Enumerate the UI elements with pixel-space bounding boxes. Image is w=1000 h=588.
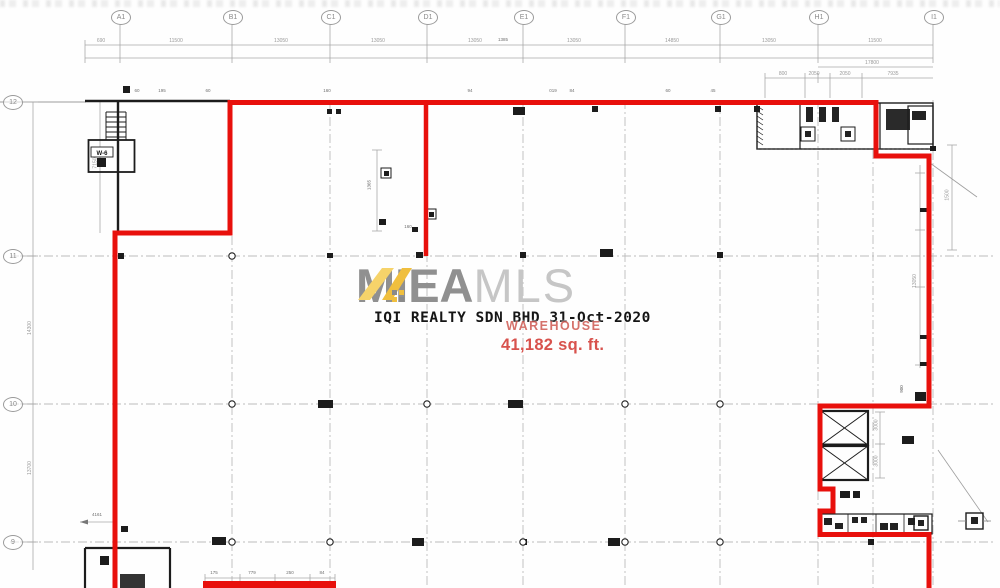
dim-left: 13700 <box>27 461 33 475</box>
dim-right: 3000 <box>874 455 880 466</box>
dim-right: 13050 <box>912 274 918 288</box>
dim-top-sub: 800 <box>779 71 787 77</box>
grid-col-label-e1: E1 <box>514 10 534 25</box>
dim-top-span: 13050 <box>371 38 385 44</box>
dim-micro: 160 <box>323 88 331 93</box>
grid-row-label-9: 9 <box>3 535 23 550</box>
dimension-arrowhead <box>80 520 88 525</box>
grid-col-label-c1: C1 <box>321 10 341 25</box>
grid-col-label-a1: A1 <box>111 10 131 25</box>
dim-top-sub: 17800 <box>865 60 879 66</box>
dim-micro: 019 <box>549 88 557 93</box>
dim-top-sub: 2050 <box>808 71 819 77</box>
brand-row: MIEA MLS <box>356 260 576 308</box>
dim-right: 3000 <box>874 419 880 430</box>
dim-top-offset: 690 <box>97 38 105 44</box>
dim-top-span: 11500 <box>169 38 183 44</box>
grid-col-label-h1: H1 <box>809 10 829 25</box>
dim-top-span: 13050 <box>762 38 776 44</box>
dim-micro: 60 <box>665 88 670 93</box>
dim-top-span: 13050 <box>468 38 482 44</box>
dim-top-span: 13050 <box>567 38 581 44</box>
lift-shafts <box>821 411 868 498</box>
bottom-left-room <box>85 548 170 588</box>
brand-mls: MLS <box>474 264 577 308</box>
stair-unit-tag: W-6 <box>97 151 109 157</box>
dim-right: 1500 <box>945 189 951 200</box>
dim-left: 14300 <box>27 321 33 335</box>
toilet-block-topright <box>757 103 933 149</box>
grid-col-label-g1: G1 <box>711 10 731 25</box>
dim-left: 7150 <box>93 157 99 168</box>
dim-micro: 195 <box>158 88 166 93</box>
dim-inner: 900 <box>899 385 904 393</box>
grid-row-label-11: 11 <box>3 249 23 264</box>
dim-bottom: 175 <box>210 570 218 575</box>
dim-top-span: 11500 <box>868 38 882 44</box>
dim-micro: 60 <box>205 88 210 93</box>
grid-col-label-i1: I1 <box>924 10 944 25</box>
warehouse-label: WAREHOUSE <box>506 319 601 333</box>
floor-plan-canvas: W-6 <box>0 0 1000 588</box>
toilet-row-bottomright <box>820 513 991 534</box>
grid-row-label-10: 10 <box>3 397 23 412</box>
dim-inner: 160 <box>404 224 412 229</box>
dim-bottom: 250 <box>286 570 294 575</box>
grid-col-label-d1: D1 <box>418 10 438 25</box>
grid-row-label-12: 12 <box>3 95 23 110</box>
dim-micro: 45 <box>710 88 715 93</box>
dim-micro: 60 <box>134 88 139 93</box>
dim-top-span: 13050 <box>274 38 288 44</box>
warehouse-area-value: 41,182 sq. ft. <box>501 336 604 355</box>
walls <box>85 101 230 233</box>
dim-top-sub: 2050 <box>839 71 850 77</box>
dim-bottom: 779 <box>248 570 256 575</box>
dim-bottom: 84 <box>319 570 324 575</box>
dim-inner: 1365 <box>367 180 372 190</box>
grid-col-label-f1: F1 <box>616 10 636 25</box>
miea-logo-icon <box>356 260 414 306</box>
dim-inner: 4161 <box>92 512 102 517</box>
dim-micro: 94 <box>467 88 472 93</box>
leader-diagonals <box>930 163 988 522</box>
dim-top-span: 14850 <box>665 38 679 44</box>
dim-micro: 84 <box>569 88 574 93</box>
dim-top-sub: 7935 <box>887 71 898 77</box>
dim-inner: 1385 <box>498 37 508 42</box>
grid-col-label-b1: B1 <box>223 10 243 25</box>
mls-watermark: MIEA MLS IQI REALTY SDN BHD 31-Oct-2020 … <box>348 258 668 368</box>
